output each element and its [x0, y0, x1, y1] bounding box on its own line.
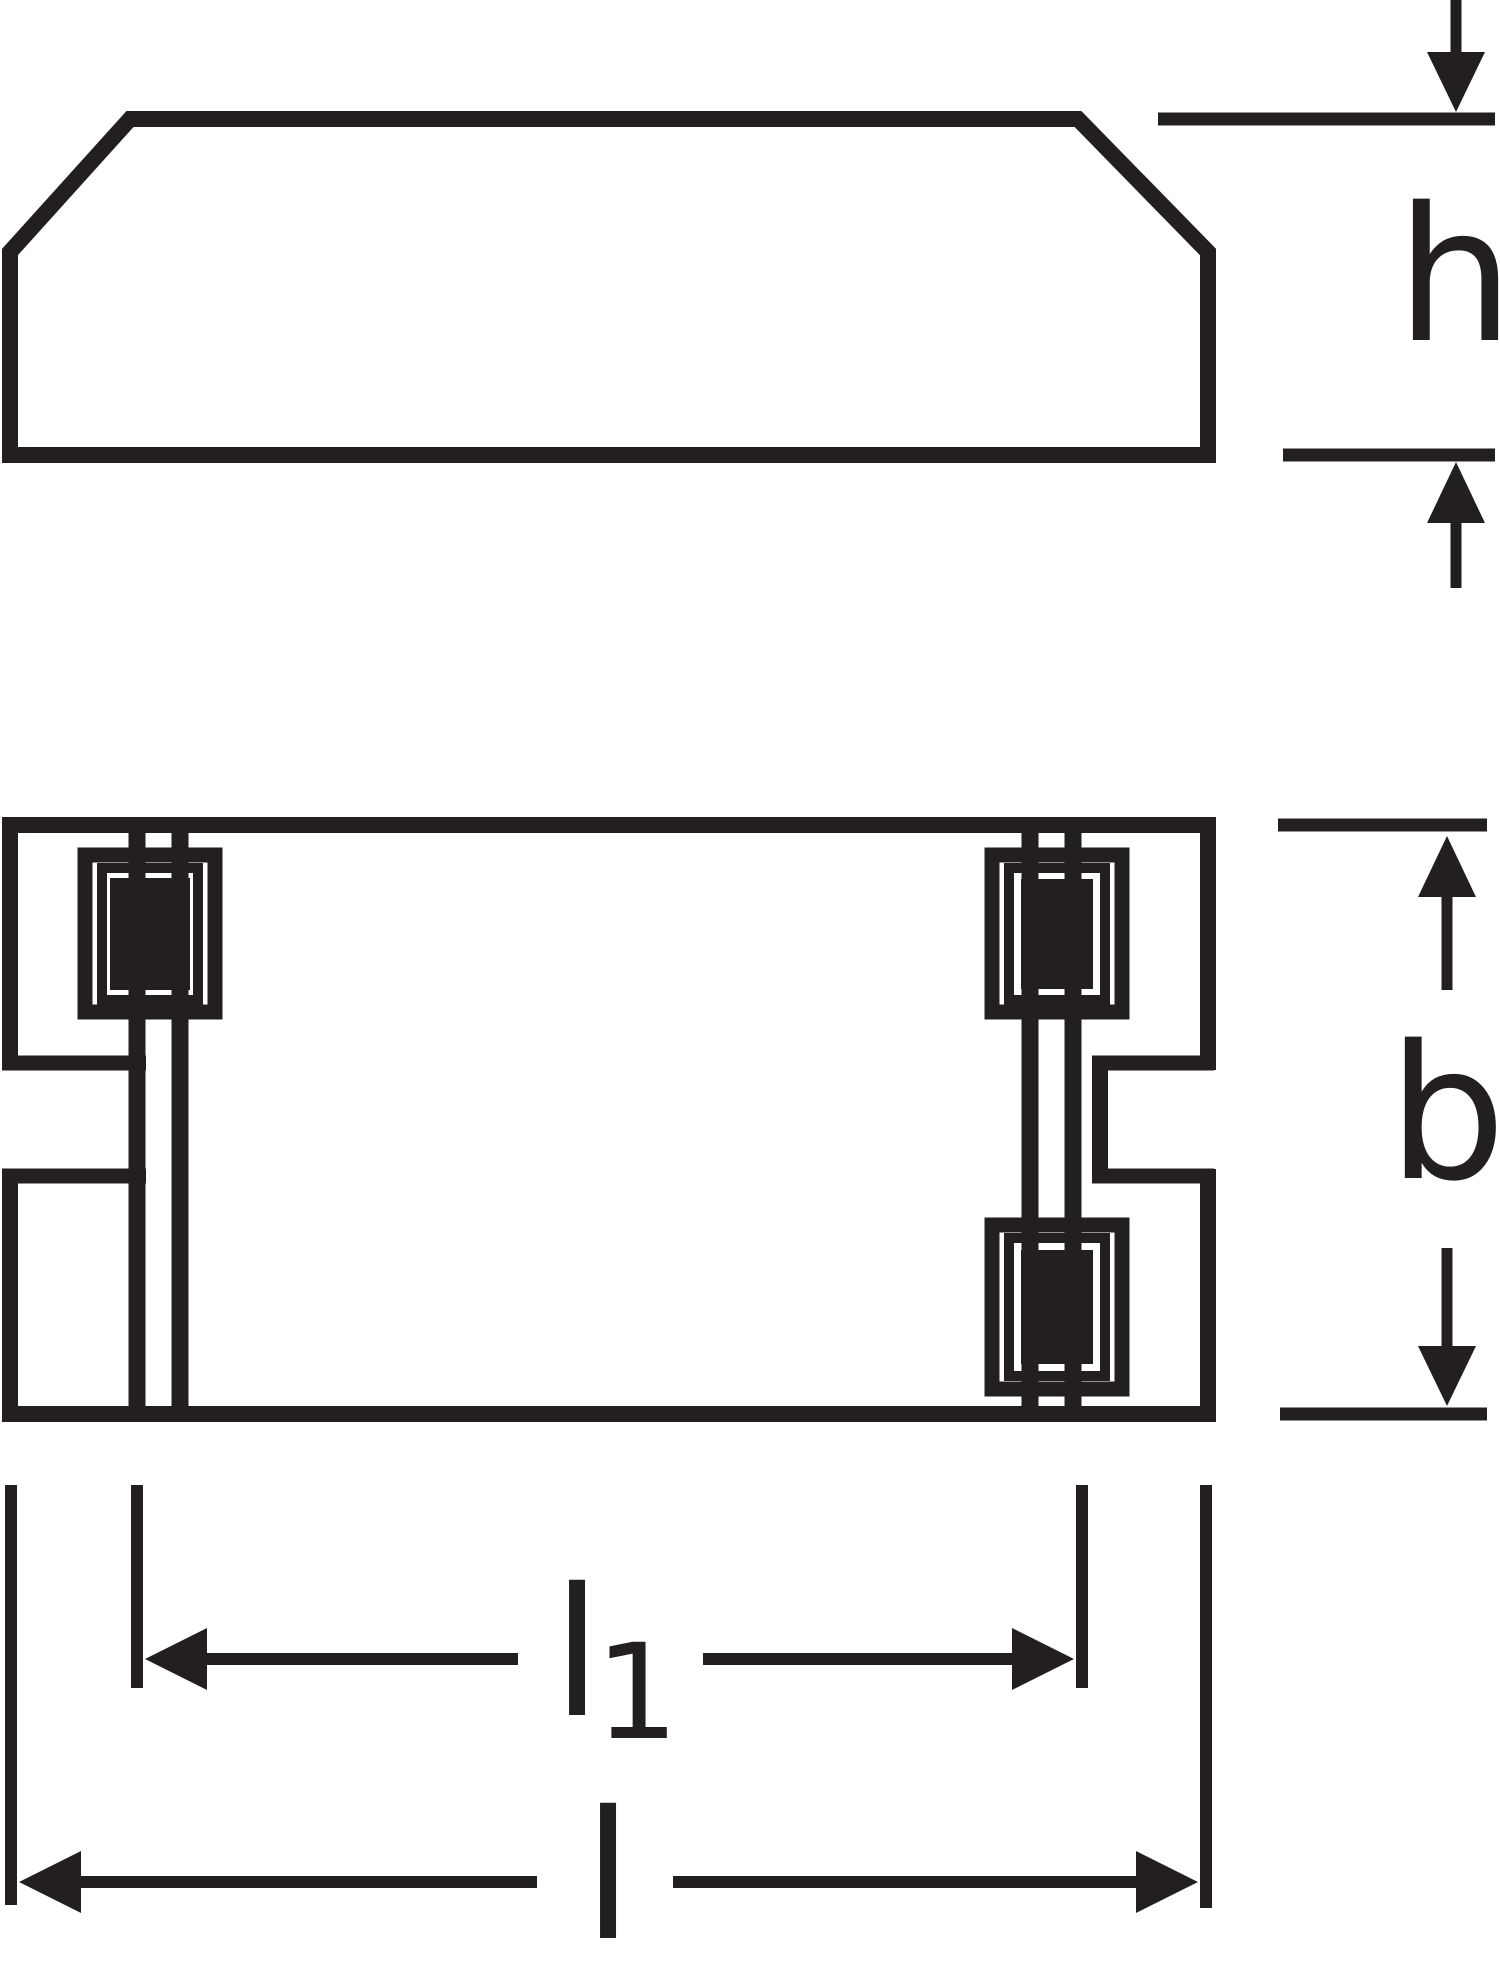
- mounting-length-dimension: l 1: [137, 1485, 1082, 1770]
- terminal-right-top-contact: [1021, 879, 1093, 989]
- side-view: [10, 119, 1208, 455]
- mounting-length-arrow-right-icon: [703, 1628, 1074, 1690]
- mounting-length-arrow-left-icon: [145, 1628, 518, 1690]
- height-arrow-up-icon: [1427, 462, 1485, 588]
- overall-length-label: l: [583, 1773, 632, 1976]
- overall-length-arrow-left-icon: [19, 1851, 537, 1913]
- overall-length-arrow-right-icon: [673, 1851, 1198, 1913]
- mounting-length-label-subscript: 1: [595, 1616, 679, 1770]
- width-arrow-down-icon: [1418, 1248, 1476, 1406]
- terminal-block-right-top: [992, 855, 1122, 1012]
- terminal-right-bottom-contact: [1021, 1250, 1093, 1364]
- top-view: [2, 818, 1216, 1421]
- width-label: b: [1388, 1005, 1500, 1222]
- terminal-block-left-top: [85, 855, 215, 1012]
- dimension-drawing: h: [0, 0, 1500, 1976]
- side-view-housing-outline: [10, 119, 1208, 455]
- terminal-block-right-bottom: [992, 1225, 1122, 1389]
- width-dimension: b: [1278, 825, 1500, 1414]
- width-arrow-up-icon: [1418, 836, 1476, 990]
- height-label: h: [1396, 167, 1500, 384]
- height-arrow-down-icon: [1427, 0, 1485, 112]
- terminal-left-contact: [110, 878, 190, 990]
